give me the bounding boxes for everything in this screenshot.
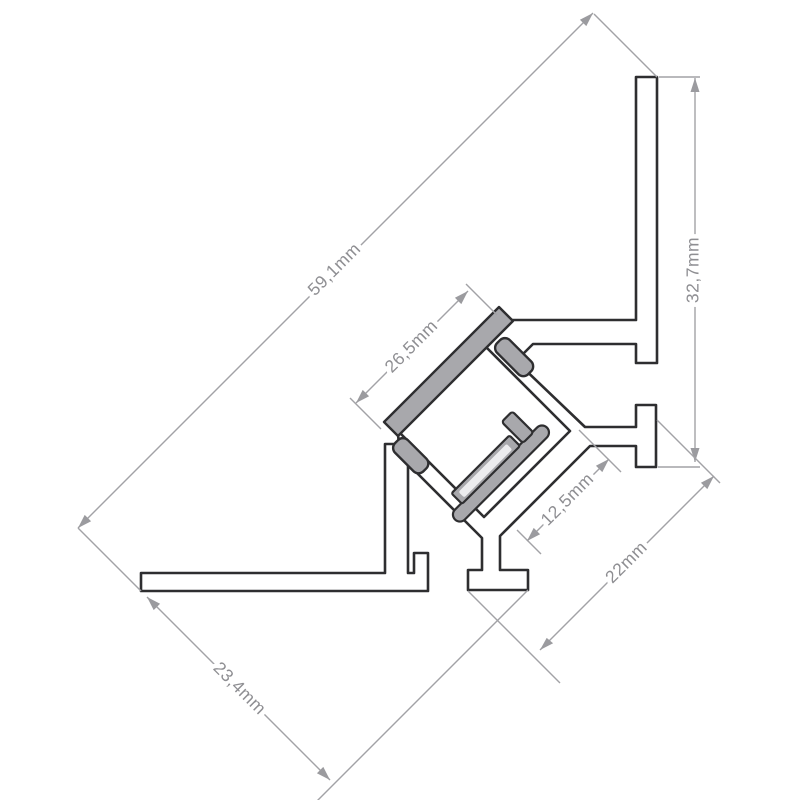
profile-bottom-flange [141, 444, 428, 591]
dimension-label-23-4: 23,4mm [209, 658, 270, 719]
profile-cross-section-svg: 59,1mm 32,7mm 26,5mm 12,5mm [0, 0, 800, 800]
dimension-label-22: 22mm [601, 537, 651, 587]
dimension-label-32-7: 32,7mm [683, 237, 703, 303]
cover-face [384, 307, 513, 436]
dimension-label-26-5: 26,5mm [381, 316, 442, 377]
aluminium-profile [141, 77, 657, 591]
dimension-32-7: 32,7mm [658, 77, 703, 467]
dimension-23-4: 23,4mm [147, 590, 528, 800]
dimension-label-59-1: 59,1mm [304, 239, 365, 300]
led-strip-module [430, 402, 552, 524]
technical-drawing-canvas: 59,1mm 32,7mm 26,5mm 12,5mm [0, 0, 800, 800]
